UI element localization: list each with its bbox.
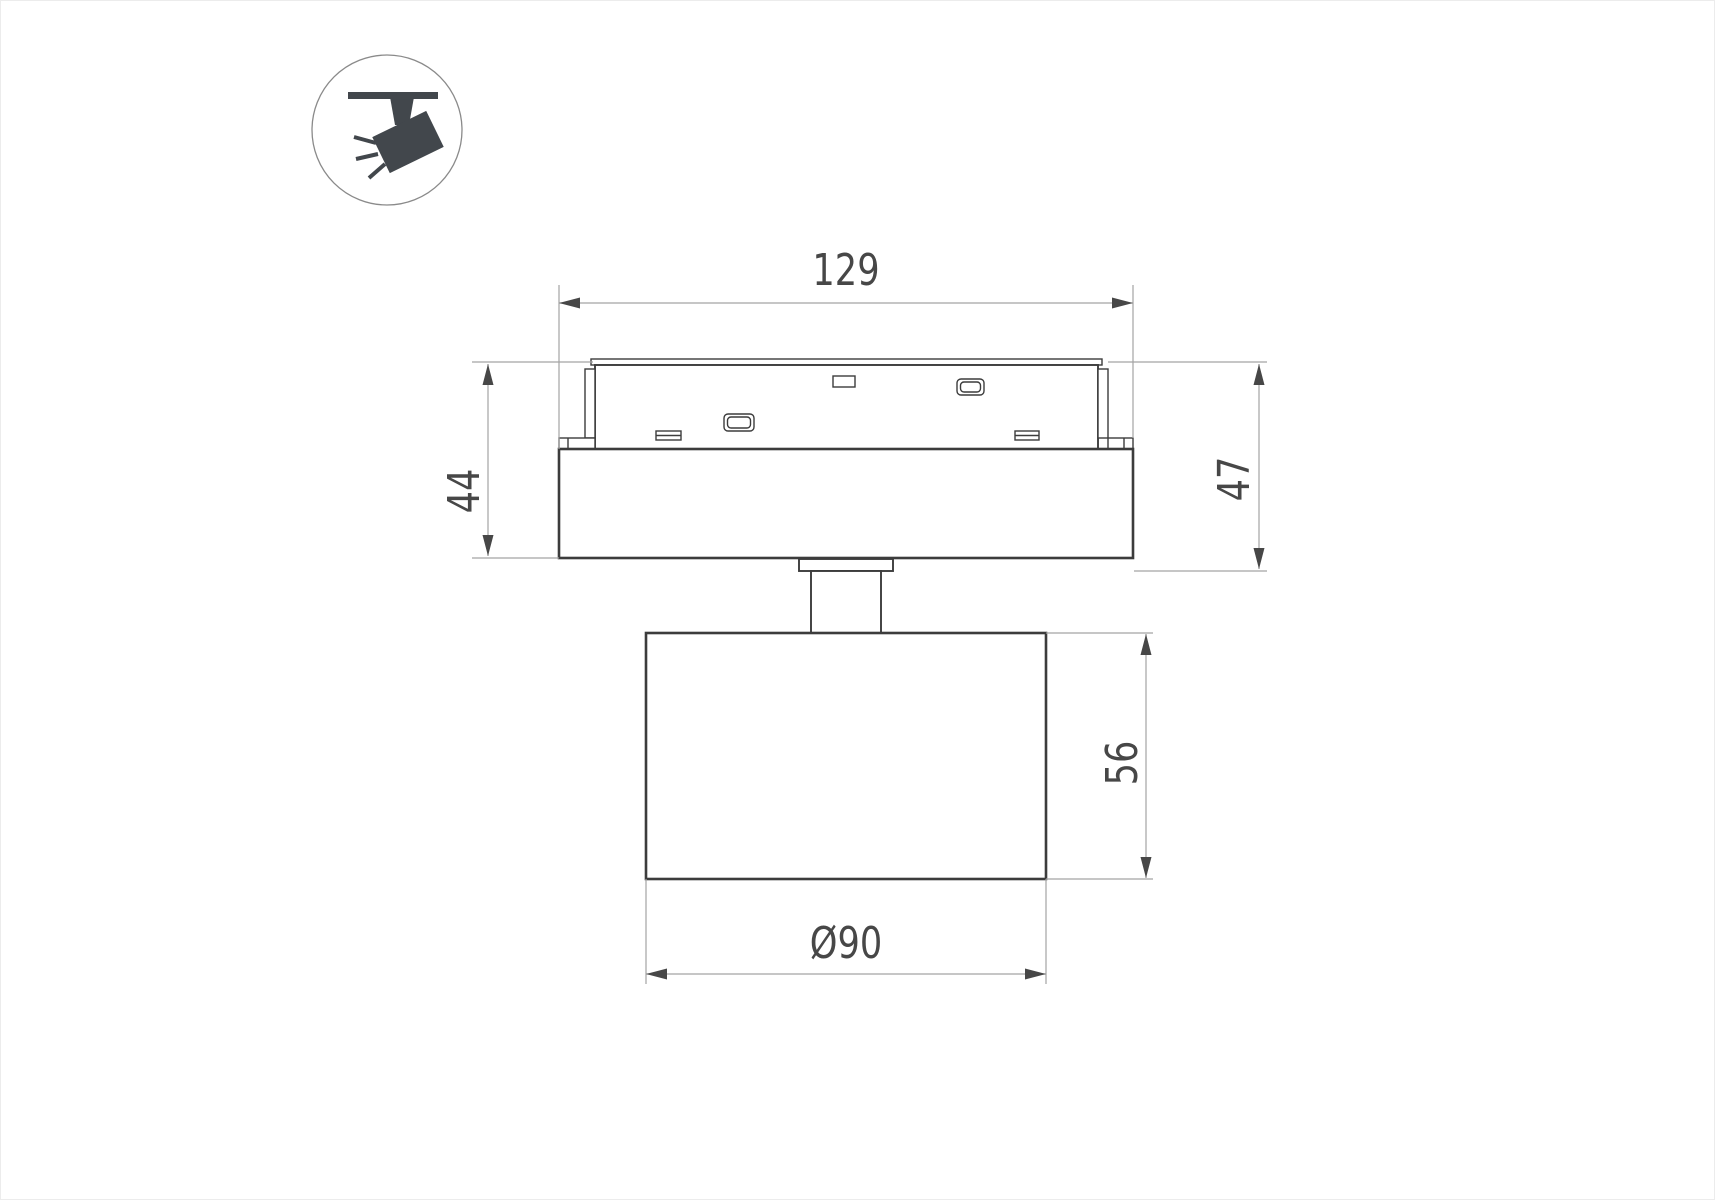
yoke-stem [811,571,881,633]
arrow-down [1141,857,1152,878]
dimension-diameter-90: Ø90 [646,879,1046,984]
track-spotlight-icon [312,55,462,205]
dimension-label-47: 47 [1209,457,1260,502]
arrow-up [483,364,494,385]
adapter-clip-right [1098,369,1108,438]
dimension-label-129: 129 [812,245,879,296]
arrow-left [646,969,667,980]
spotlight-head [646,633,1046,879]
arrow-up [1254,364,1265,385]
luminaire-side-view [559,359,1133,879]
arrow-down [483,535,494,556]
drawing-sheet: 129 44 47 56 Ø90 [0,0,1715,1200]
arrow-down [1254,548,1265,569]
adapter-slot-round-left-inner [728,417,751,428]
dimension-56: 56 [1046,633,1153,879]
arrow-up [1141,634,1152,655]
housing-shoulder-right [1108,438,1133,449]
housing-shoulder-left [559,438,595,449]
arrow-right [1025,969,1046,980]
icon-light-ray [356,154,378,159]
dimension-label-44: 44 [439,469,490,514]
arrow-right [1112,298,1133,309]
dimension-label-d90: Ø90 [810,918,882,969]
icon-light-ray [369,164,385,178]
arrow-left [559,298,580,309]
adapter-slot-rect [833,376,855,387]
technical-drawing: 129 44 47 56 Ø90 [1,1,1715,1200]
yoke-flange [799,559,893,571]
driver-housing [559,449,1133,558]
adapter-slot-round-right-inner [961,382,981,392]
dimension-label-56: 56 [1097,741,1148,786]
adapter-clip-left [585,369,595,438]
